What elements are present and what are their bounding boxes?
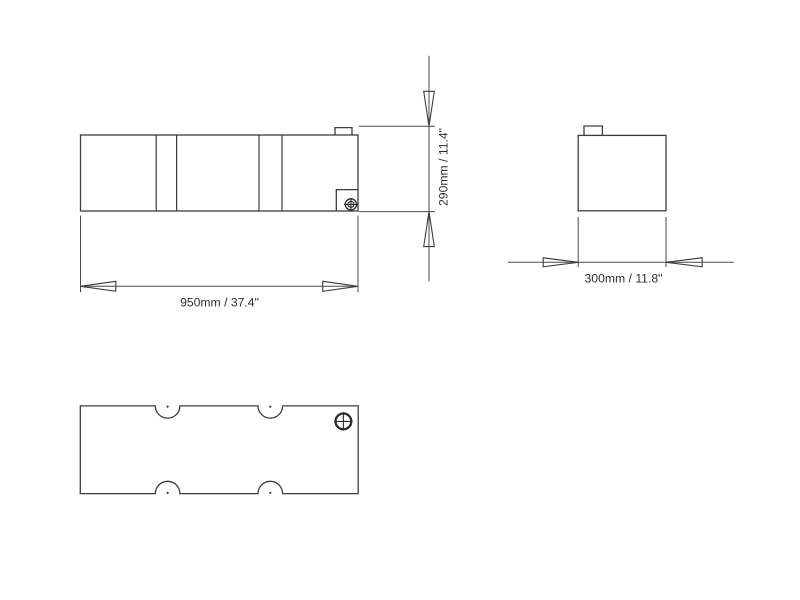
- svg-text:290mm / 11.4": 290mm / 11.4": [437, 128, 451, 206]
- svg-text:300mm / 11.8": 300mm / 11.8": [585, 272, 663, 286]
- svg-text:950mm / 37.4": 950mm / 37.4": [180, 296, 259, 310]
